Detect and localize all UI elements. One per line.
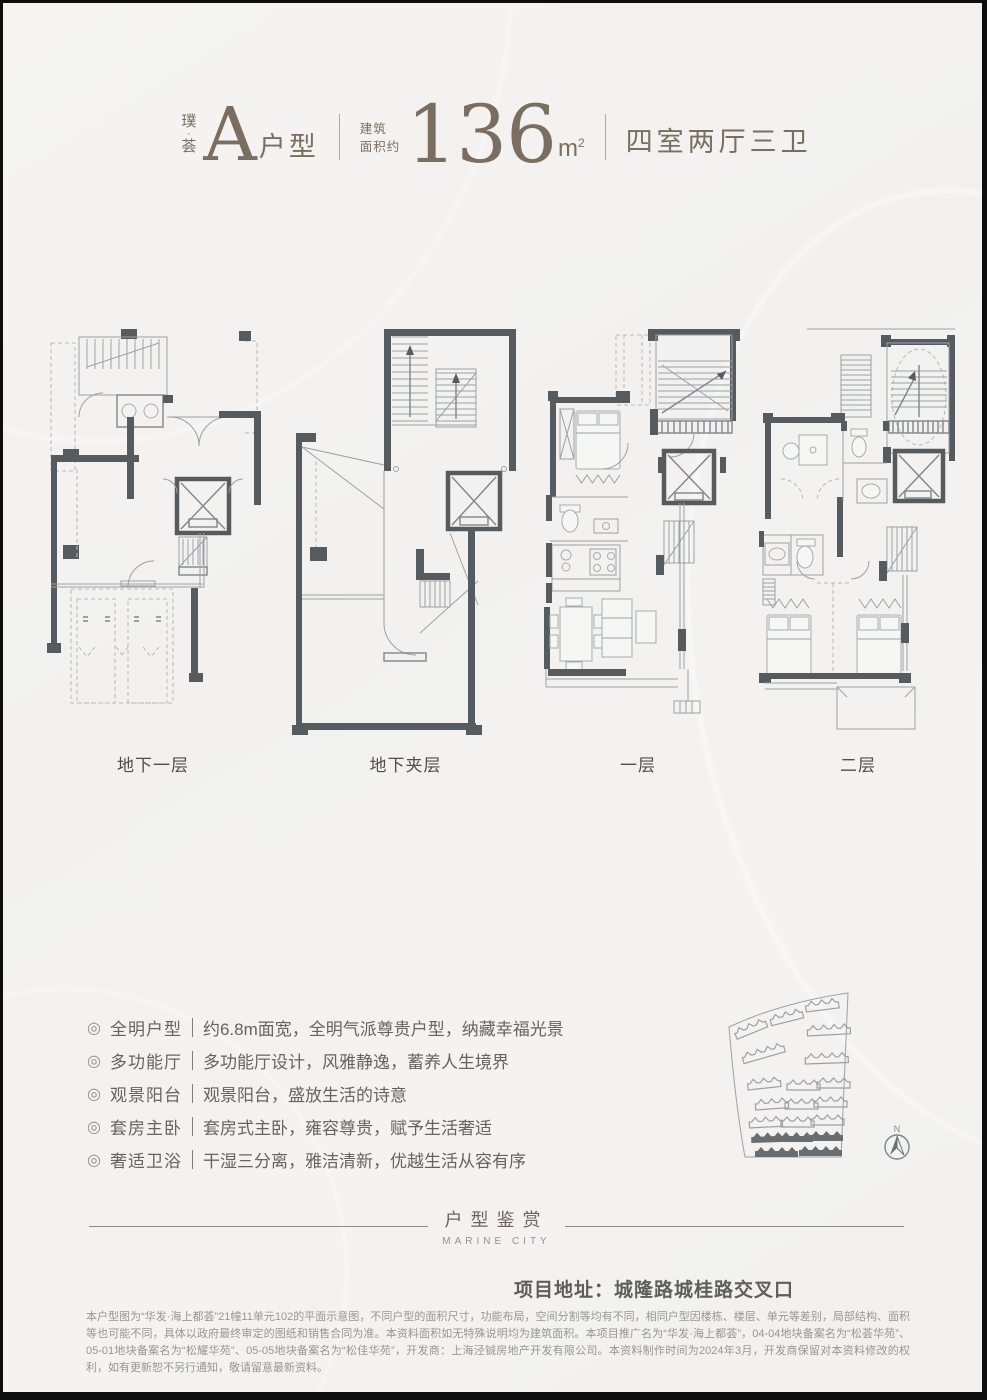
sink [862, 484, 880, 498]
feature-item: ◎ 套房主卧 套房式主卧，雍容尊贵，赋予生活奢适 [87, 1110, 564, 1143]
bullet-icon: ◎ [87, 1051, 101, 1071]
feature-desc: 套房式主卧，雍容尊贵，赋予生活奢适 [203, 1114, 492, 1139]
floorplan-second-drawing [753, 321, 963, 736]
floorplan-basement1: 地下一层 [43, 321, 263, 738]
feature-item: ◎ 全明户型 约6.8m面宽，全明气派尊贵户型，纳藏幸福光景 [87, 1011, 564, 1044]
divider-line-right [565, 1226, 904, 1227]
brand-mark: 璞 · 荟 [181, 114, 197, 155]
floorplan-first-drawing [528, 321, 748, 738]
area-unit: m2 [558, 135, 585, 163]
left-room [296, 433, 384, 623]
floorplans-row: 地下一层 [3, 321, 987, 781]
project-address: 项目地址：城隆路城桂路交叉口 [514, 1275, 794, 1302]
area-unit-exp: 2 [578, 136, 585, 150]
area-value: 136 [406, 101, 556, 169]
bullet-icon: ◎ [87, 1084, 101, 1104]
feature-separator [192, 1117, 193, 1136]
feature-desc: 观景阳台，盛放生活的诗意 [203, 1081, 407, 1106]
header-divider [605, 114, 606, 160]
feature-separator [192, 1084, 193, 1103]
staircase [51, 329, 257, 471]
staircase [616, 329, 740, 457]
floorplan-second: 二层 [753, 321, 963, 741]
site-boundary [729, 993, 848, 1157]
bathroom [759, 531, 823, 605]
toilet [797, 546, 813, 568]
feature-item: ◎ 多功能厅 多功能厅设计，风雅静逸，蓄养人生境界 [87, 1044, 564, 1077]
area-label-line2: 面积约 [360, 138, 401, 156]
feature-desc: 干湿三分离，雅洁清新，优越生活从容有序 [203, 1147, 526, 1172]
bedroom-left [767, 599, 811, 677]
pergola-strip [841, 355, 871, 417]
entry-french-doors [167, 417, 231, 446]
coffee-table [636, 611, 656, 643]
floorplan-label-basement1: 地下一层 [43, 751, 263, 776]
site-buildings [733, 998, 850, 1157]
elevator-shaft [163, 479, 243, 533]
area-unit-m: m [558, 135, 578, 162]
highlighted-building [810, 1131, 843, 1141]
laundry-sinks [117, 395, 173, 427]
stairs-lower [384, 533, 478, 661]
feature-desc: 约6.8m面宽，全明气派尊贵户型，纳藏幸福光景 [203, 1015, 564, 1040]
feature-item: ◎ 观景阳台 观景阳台，盛放生活的诗意 [87, 1077, 564, 1110]
header: 璞 · 荟 A 户型 建筑 面积约 136 m2 四室两厅三卫 [3, 101, 987, 169]
feature-separator [192, 1051, 193, 1070]
stairs-lower [179, 537, 207, 575]
compass-label: N [894, 1124, 901, 1134]
bullet-icon: ◎ [87, 1150, 101, 1170]
elevator-shaft [448, 473, 500, 529]
toilet [852, 437, 866, 457]
toilet [562, 510, 578, 532]
stair-hall [384, 329, 516, 472]
elevator-shaft [895, 451, 943, 501]
feature-list: ◎ 全明户型 约6.8m面宽，全明气派尊贵户型，纳藏幸福光景 ◎ 多功能厅 多功… [87, 1011, 564, 1176]
feature-item: ◎ 奢适卫浴 干湿三分离，雅洁清新，优越生活从容有序 [87, 1143, 564, 1176]
bedroom-right [857, 599, 901, 677]
feature-title: 全明户型 [110, 1015, 182, 1040]
wc [841, 421, 889, 503]
bullet-icon: ◎ [87, 1117, 101, 1137]
brand-bottom: 荟 [181, 139, 197, 156]
highlighted-building [751, 1132, 784, 1143]
feature-desc: 多功能厅设计，风雅静逸，蓄养人生境界 [203, 1048, 509, 1073]
highlighted-building [755, 1147, 798, 1157]
desk [799, 435, 827, 465]
chair [783, 443, 799, 459]
compass-icon: N [885, 1124, 909, 1159]
garage-parking [71, 561, 203, 703]
divider-line-left [89, 1226, 428, 1227]
dining-table [550, 598, 602, 670]
section-divider: 户型鉴赏 MARINE CITY [89, 1206, 904, 1247]
section-subtitle: MARINE CITY [442, 1236, 550, 1247]
floorplan-label-first: 一层 [528, 751, 748, 776]
elevator-shaft [658, 451, 726, 503]
floorplan-first: 一层 [528, 321, 748, 743]
sink [769, 548, 785, 560]
sofa [602, 599, 656, 657]
highlighted-building [780, 1132, 813, 1142]
unit-type-label: 户型 [259, 125, 319, 164]
bedroom [548, 391, 630, 497]
area-label: 建筑 面积约 [360, 120, 401, 156]
stairs-mid [656, 503, 694, 669]
stairs-mid [879, 527, 917, 581]
feature-title: 观景阳台 [110, 1081, 182, 1106]
floorplan-mezzanine: 地下夹层 [288, 321, 523, 741]
floorplan-basement1-drawing [43, 321, 263, 733]
section-title: 户型鉴赏 [442, 1206, 550, 1232]
floorplan-mezzanine-drawing [288, 321, 523, 736]
feature-title: 多功能厅 [110, 1048, 182, 1073]
area-label-line1: 建筑 [360, 120, 401, 138]
header-divider [339, 114, 340, 160]
staircase [881, 335, 955, 463]
highlighted-building [799, 1146, 842, 1156]
feature-separator [192, 1150, 193, 1169]
brochure-page: 璞 · 荟 A 户型 建筑 面积约 136 m2 四室两厅三卫 [0, 0, 987, 1400]
feature-title: 套房主卧 [110, 1114, 182, 1139]
bathroom [546, 495, 628, 541]
bullet-icon: ◎ [87, 1018, 101, 1038]
unit-type-letter: A [203, 101, 256, 169]
feature-separator [192, 1018, 193, 1037]
feature-title: 奢适卫浴 [110, 1147, 182, 1172]
floorplan-label-mezzanine: 地下夹层 [288, 751, 523, 776]
site-plan: N [705, 987, 940, 1192]
rooms-label: 四室两厅三卫 [626, 120, 812, 159]
disclaimer-text: 本户型图为“华发·海上都荟”21幢11单元102的平面示意图，不同户型的面积尺寸… [86, 1309, 910, 1377]
floorplan-label-second: 二层 [753, 751, 963, 776]
balcony [546, 669, 700, 713]
